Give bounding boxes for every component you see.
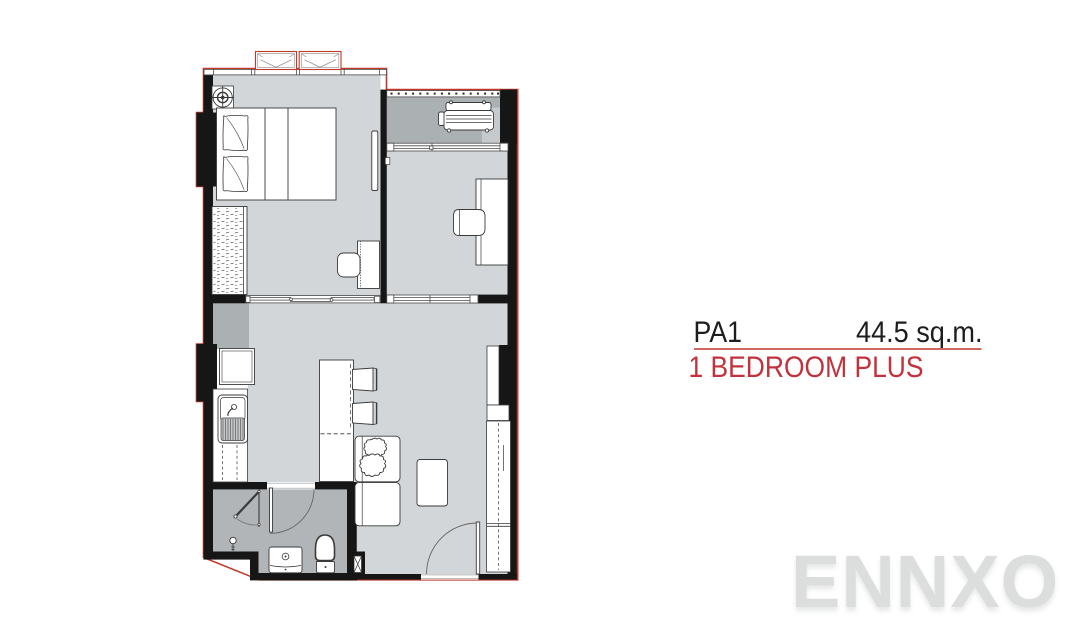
svg-text:PA1: PA1 bbox=[694, 316, 743, 349]
svg-text:1 BEDROOM PLUS: 1 BEDROOM PLUS bbox=[689, 351, 924, 384]
svg-text:ENNXO: ENNXO bbox=[791, 540, 1059, 623]
svg-text:44.5 sq.m.: 44.5 sq.m. bbox=[856, 316, 983, 349]
